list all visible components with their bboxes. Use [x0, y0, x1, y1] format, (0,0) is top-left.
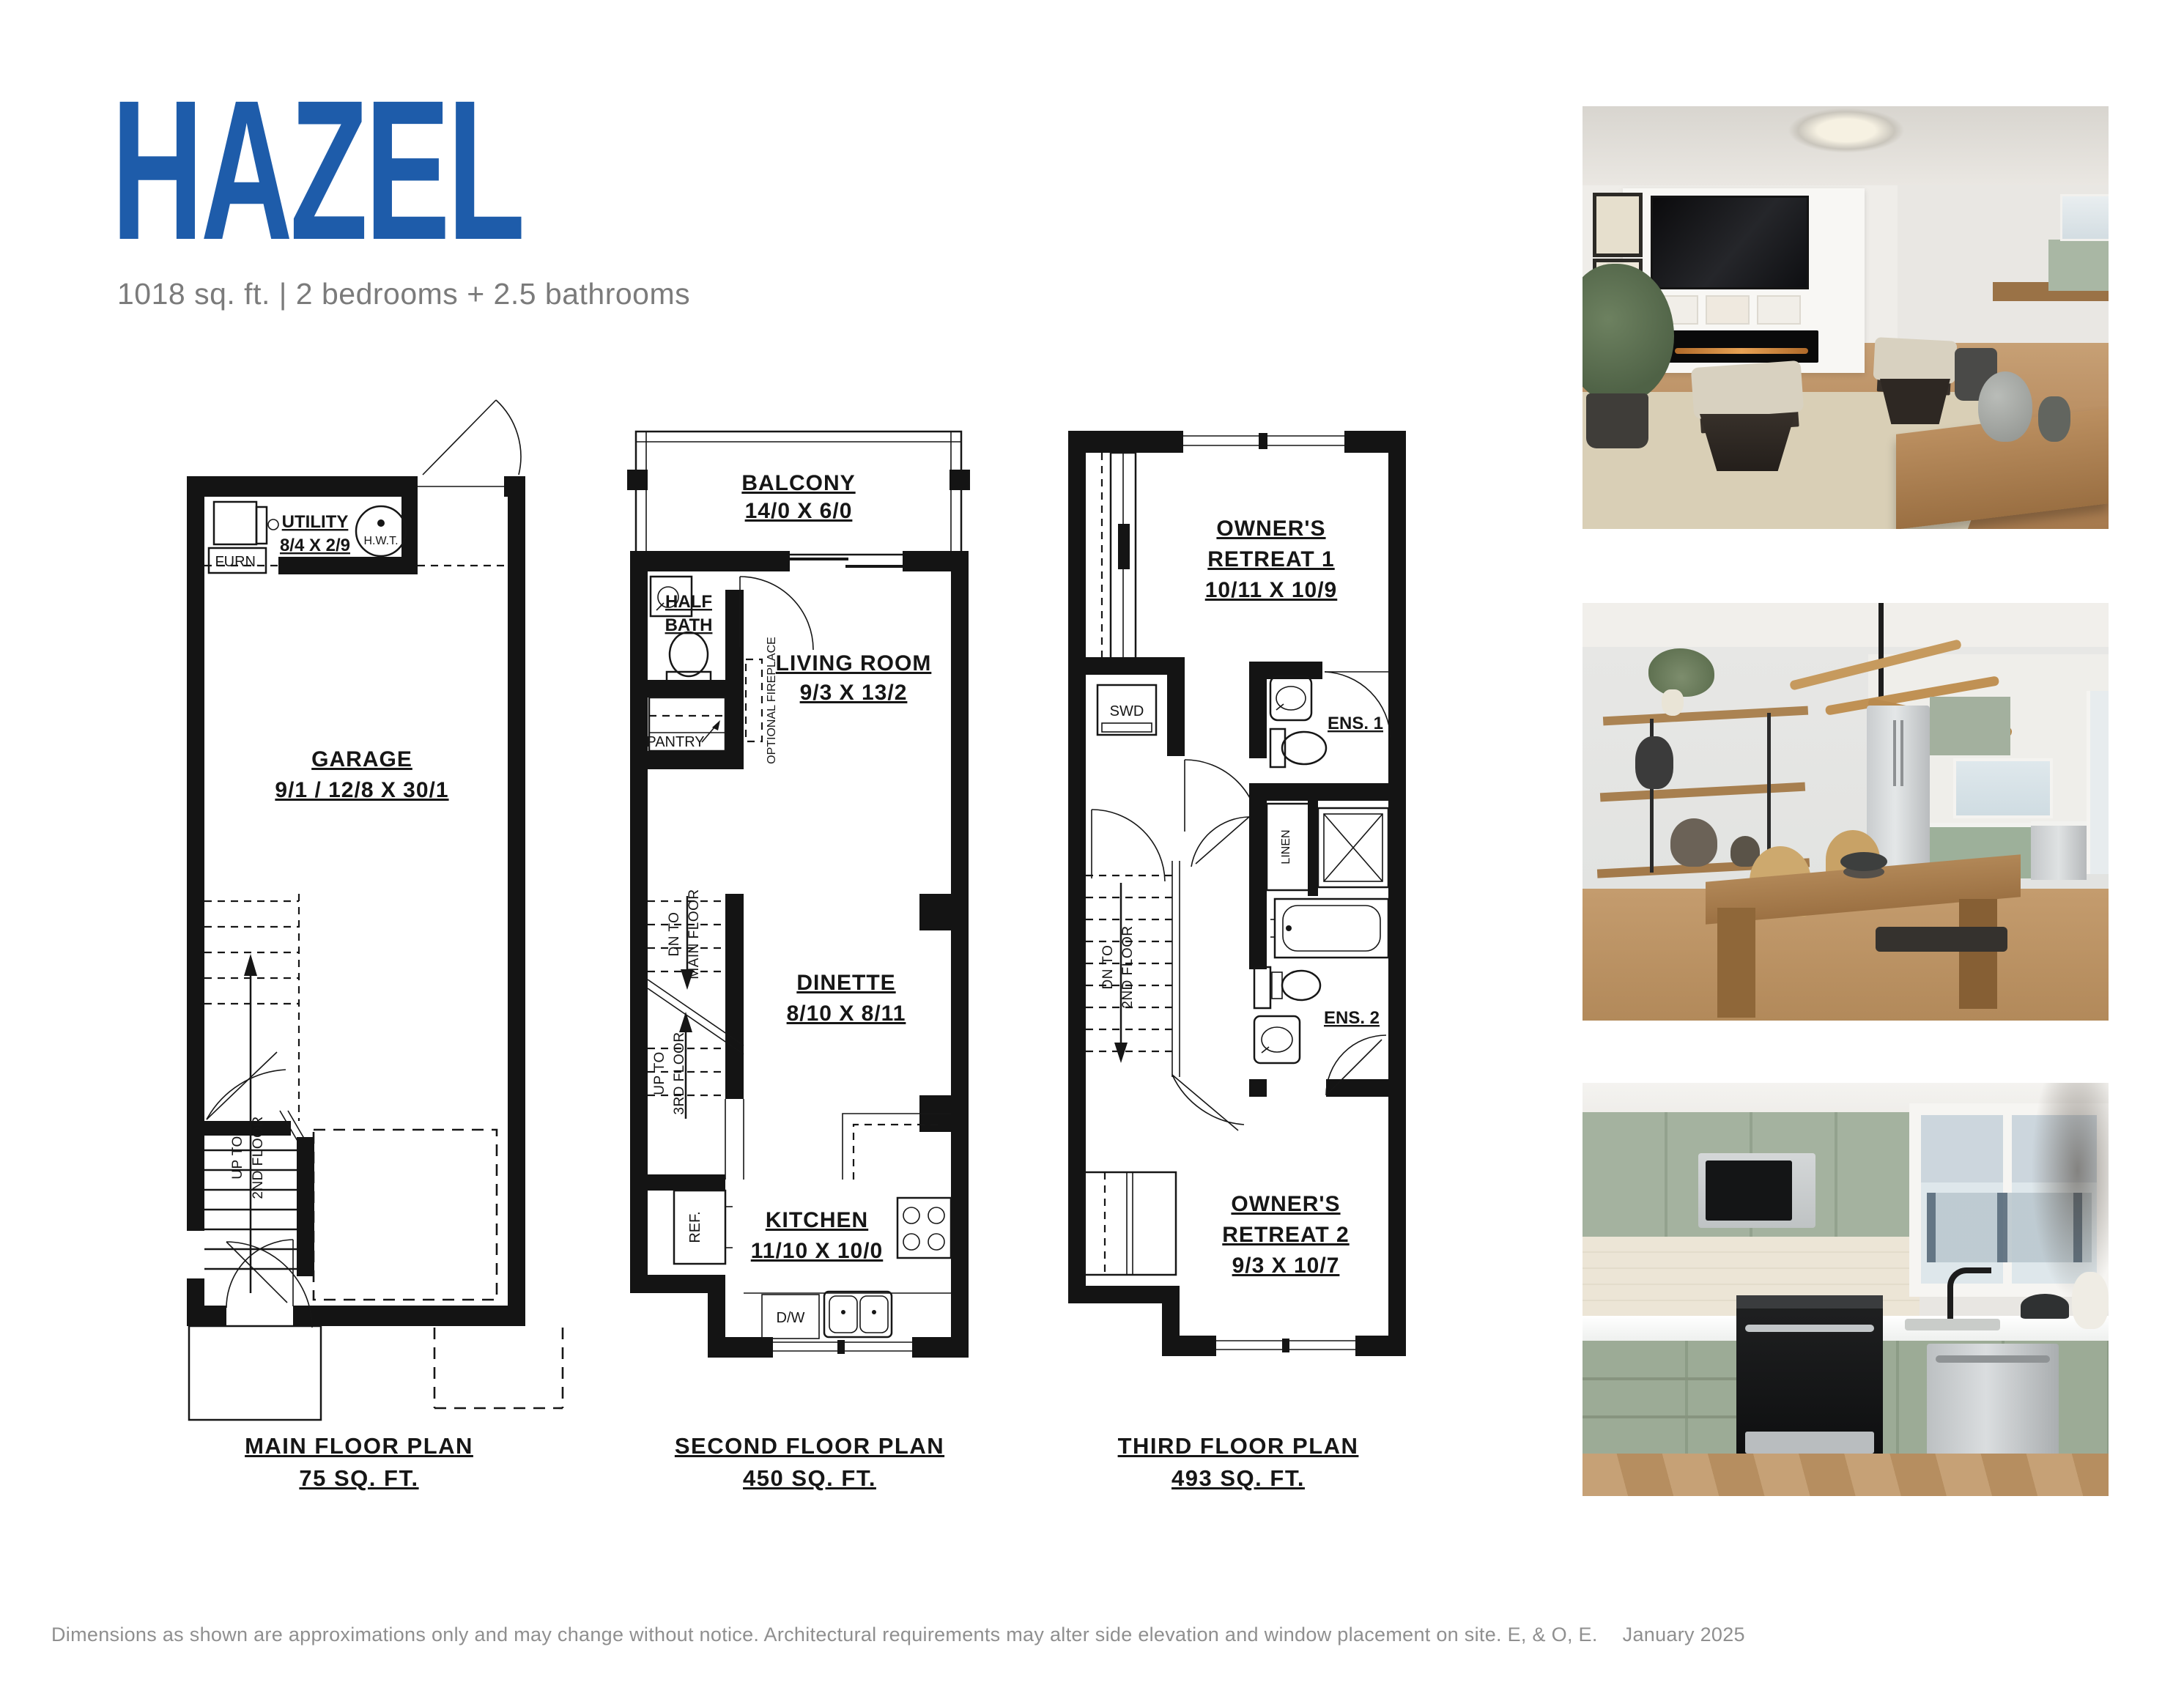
living-room-name: LIVING ROOM	[776, 651, 932, 675]
brochure-page: HAZEL 1018 sq. ft. | 2 bedrooms + 2.5 ba…	[0, 0, 2184, 1688]
bench	[1876, 927, 2007, 952]
counter-bowls	[2021, 1294, 2069, 1319]
swd-label: SWD	[1110, 703, 1144, 719]
ceiling-light	[1788, 108, 1905, 153]
stairs-dn-text2: MAIN FLOOR	[686, 889, 702, 979]
swd-closet	[1081, 657, 1259, 834]
bg-kitchen-cabinets	[2048, 240, 2109, 291]
page-title: HAZEL	[111, 70, 522, 270]
second-plan-title: SECOND FLOOR PLAN	[663, 1430, 956, 1462]
armchair-right	[1873, 337, 1958, 384]
page-subtitle: 1018 sq. ft. | 2 bedrooms + 2.5 bathroom…	[117, 277, 690, 311]
door-glass	[2087, 691, 2109, 874]
shelf-pots	[1670, 818, 1717, 867]
tub-room	[1249, 896, 1388, 969]
retreat1-name2: RETREAT 1	[1207, 547, 1334, 571]
armchair-right-frame	[1880, 379, 1950, 424]
table-dishes	[1840, 852, 1887, 871]
ensuite2	[1249, 967, 1406, 1097]
balcony-dims: 14/0 X 6/0	[745, 499, 853, 523]
half-bath-name2: BATH	[665, 615, 713, 635]
living-room-photo	[1583, 106, 2109, 529]
retreat2-closet	[1084, 1172, 1176, 1275]
plant-pot	[1586, 393, 1648, 448]
stairs-dn-text1: DN TO	[667, 912, 682, 957]
floor	[1583, 1454, 2109, 1496]
third-plan-area: 493 SQ. FT.	[1092, 1462, 1385, 1495]
stairs-up-text1: UP TO	[652, 1051, 667, 1095]
kitchen-dims: 11/10 X 10/0	[751, 1239, 884, 1263]
kitchen-photo	[1583, 1083, 2109, 1496]
range-cooktop	[1736, 1295, 1883, 1308]
branches	[2031, 1083, 2109, 1303]
dishwasher-bg	[2031, 821, 2087, 880]
range-drawer	[1745, 1432, 1874, 1454]
dw-label: D/W	[777, 1310, 805, 1326]
main-stairs-text1: UP TO	[230, 1136, 245, 1180]
vase-large	[1978, 371, 2032, 442]
dinette-name: DINETTE	[796, 971, 895, 995]
dining-area-photo	[1583, 603, 2109, 1021]
sink	[1905, 1319, 2000, 1330]
kitchen-window	[1953, 758, 2053, 818]
fridge-handles	[1893, 720, 1896, 786]
shelf-vase-dark	[1635, 736, 1673, 789]
second-plan-caption: SECOND FLOOR PLAN 450 SQ. FT.	[663, 1430, 956, 1495]
third-plan-title: THIRD FLOOR PLAN	[1092, 1430, 1385, 1462]
furnace-label: FURN.	[215, 554, 259, 570]
ens1-label: ENS. 1	[1328, 714, 1383, 733]
third-stairs-text1: DN TO	[1100, 945, 1116, 990]
ens2-label: ENS. 2	[1324, 1008, 1380, 1028]
white-vase	[2072, 1272, 2109, 1329]
garage-dims: 9/1 / 12/8 X 30/1	[275, 778, 448, 802]
dining-table-base	[1717, 908, 1755, 1018]
niche-3	[1757, 295, 1801, 325]
third-floor-plan-drawing: OWNER'S RETREAT 1 10/11 X 10/9 SWD ENS. …	[1062, 421, 1429, 1418]
fireplace	[1665, 330, 1818, 363]
main-plan-title: MAIN FLOOR PLAN	[218, 1430, 500, 1462]
garage-door-opening	[418, 400, 521, 486]
shelf-bracket-2	[1767, 713, 1771, 867]
retreat1-name1: OWNER'S	[1216, 517, 1325, 541]
living-room-dims: 9/3 X 13/2	[800, 681, 908, 705]
utility-name: UTILITY	[282, 512, 349, 532]
fireplace-flame	[1675, 348, 1808, 354]
balcony-name: BALCONY	[741, 471, 855, 495]
shelf-vase-white	[1662, 689, 1684, 716]
vase-small	[2038, 396, 2070, 442]
ref-label: REF.	[687, 1211, 703, 1243]
dinette-dims: 8/10 X 8/11	[787, 1002, 906, 1026]
bg-window	[2060, 194, 2109, 241]
upper-green-cabinet	[1930, 697, 2010, 755]
tv	[1651, 196, 1809, 289]
niche-2	[1706, 295, 1750, 325]
kitchen-name: KITCHEN	[766, 1208, 868, 1232]
optional-fireplace	[746, 659, 762, 741]
porch	[189, 1326, 321, 1420]
third-plan-caption: THIRD FLOOR PLAN 493 SQ. FT.	[1092, 1430, 1385, 1495]
disclaimer-text: Dimensions as shown are approximations o…	[51, 1624, 1598, 1646]
wall-art-1	[1593, 193, 1643, 257]
retreat2-dims: 9/3 X 10/7	[1232, 1254, 1340, 1278]
range-handle	[1745, 1325, 1874, 1332]
faucet	[1947, 1267, 1991, 1323]
second-floor-plan-drawing: BALCONY 14/0 X 6/0	[615, 421, 1018, 1418]
main-plan-area: 75 SQ. FT.	[218, 1462, 500, 1495]
main-stairs	[204, 894, 314, 1293]
main-floor-plan-drawing: FURN. H.W.T. UTILITY 8/4 X 2/9 GARAGE 9/…	[169, 388, 564, 1421]
half-bath-name1: HALF	[665, 592, 712, 612]
retreat1-dims: 10/11 X 10/9	[1205, 578, 1338, 602]
footer-date: January 2025	[1623, 1624, 1745, 1646]
linen-label: LINEN	[1280, 829, 1292, 864]
disclaimer-footer: Dimensions as shown are approximations o…	[51, 1624, 1745, 1646]
garage-name: GARAGE	[311, 747, 412, 771]
main-stairs-text2: 2ND FLOOR	[251, 1116, 266, 1199]
utility-dims: 8/4 X 2/9	[280, 536, 350, 555]
microwave-window	[1706, 1160, 1792, 1221]
tall-left-window	[1102, 453, 1136, 659]
second-plan-area: 450 SQ. FT.	[663, 1462, 956, 1495]
hwt-label: H.W.T.	[363, 535, 398, 547]
dishwasher-handle	[1936, 1355, 2050, 1363]
stairs-up-text2: 3RD FLOOR	[672, 1032, 687, 1114]
third-stairs-text2: 2ND FLOOR	[1120, 925, 1136, 1008]
main-plan-caption: MAIN FLOOR PLAN 75 SQ. FT.	[218, 1430, 500, 1495]
retreat2-name1: OWNER'S	[1231, 1192, 1340, 1216]
armchair-left	[1691, 360, 1804, 419]
retreat2-name2: RETREAT 2	[1222, 1223, 1349, 1247]
shelf-plant	[1648, 648, 1714, 697]
ceiling	[1583, 603, 2109, 647]
pantry-label: PANTRY	[646, 734, 704, 750]
